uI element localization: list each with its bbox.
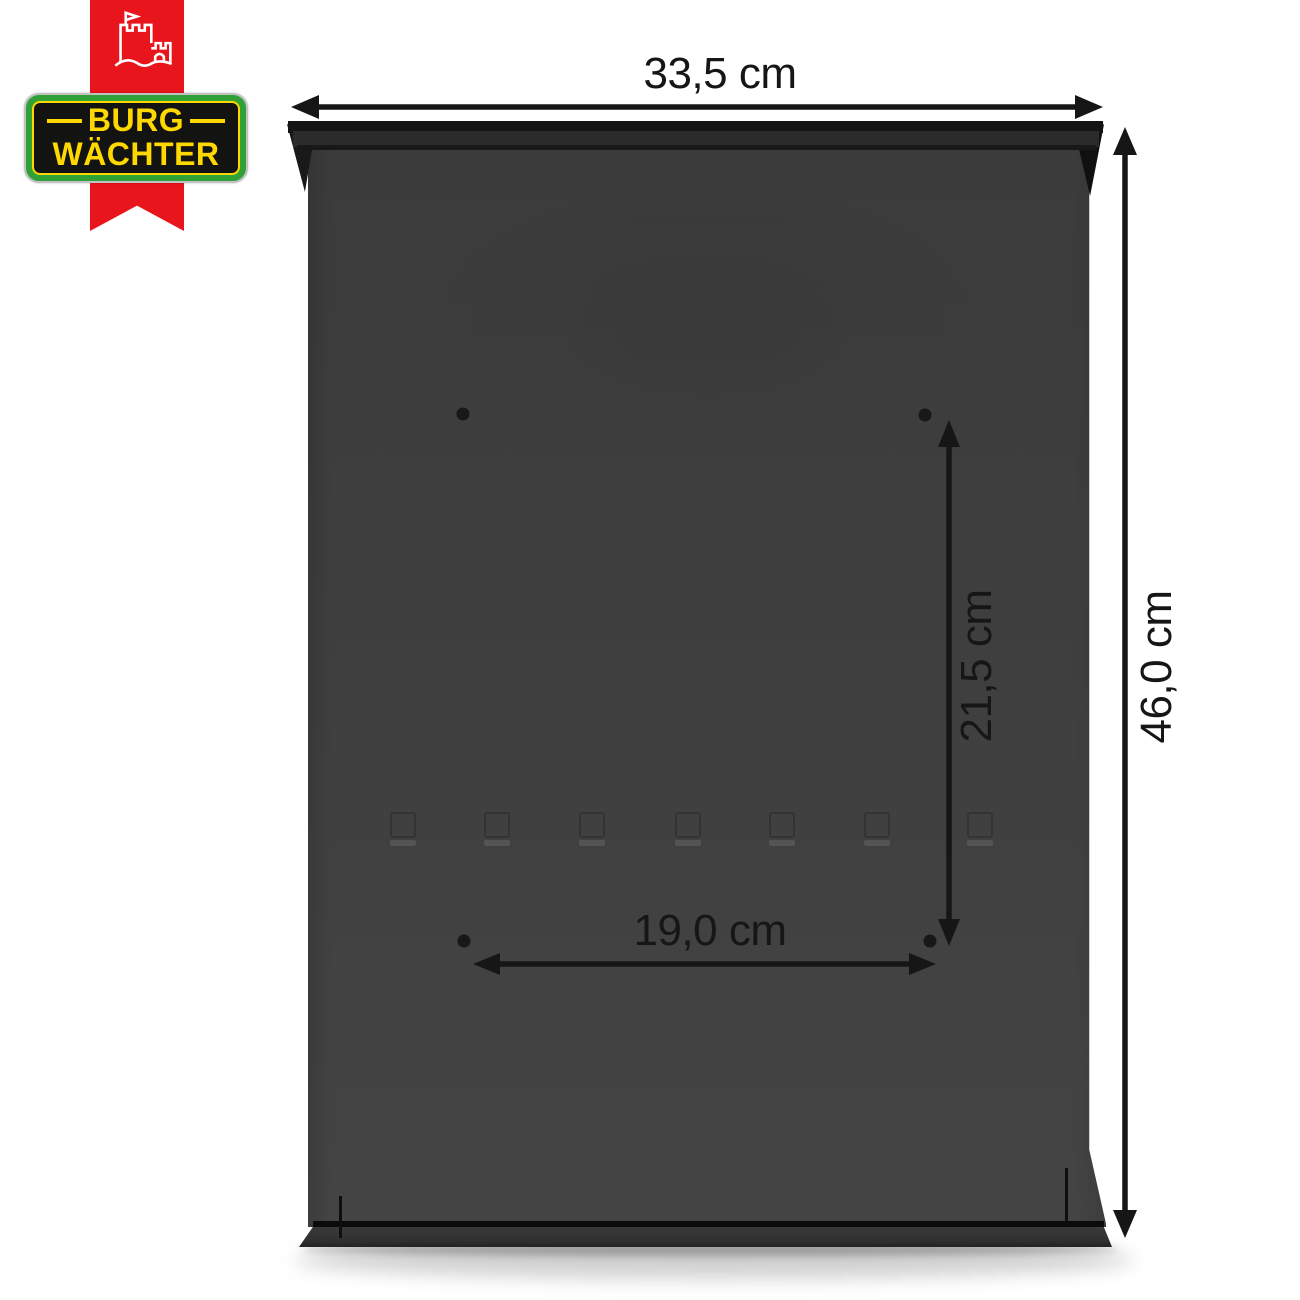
dimension-width-label: 33,5 cm [643,49,796,99]
mounting-hole [458,935,471,948]
dimension-annotations [0,0,1300,1300]
mounting-holes [457,408,937,948]
mounting-hole [457,408,470,421]
hole-horizontal-dimension-arrow [473,953,936,975]
dimension-hole-vertical-label: 21,5 cm [952,589,1002,742]
dimension-height-label: 46,0 cm [1132,590,1182,743]
mounting-hole [924,935,937,948]
mounting-hole [919,409,932,422]
dimension-hole-horizontal-label: 19,0 cm [633,906,786,956]
product-dimension-image: BURG WÄCHTER [0,0,1300,1300]
